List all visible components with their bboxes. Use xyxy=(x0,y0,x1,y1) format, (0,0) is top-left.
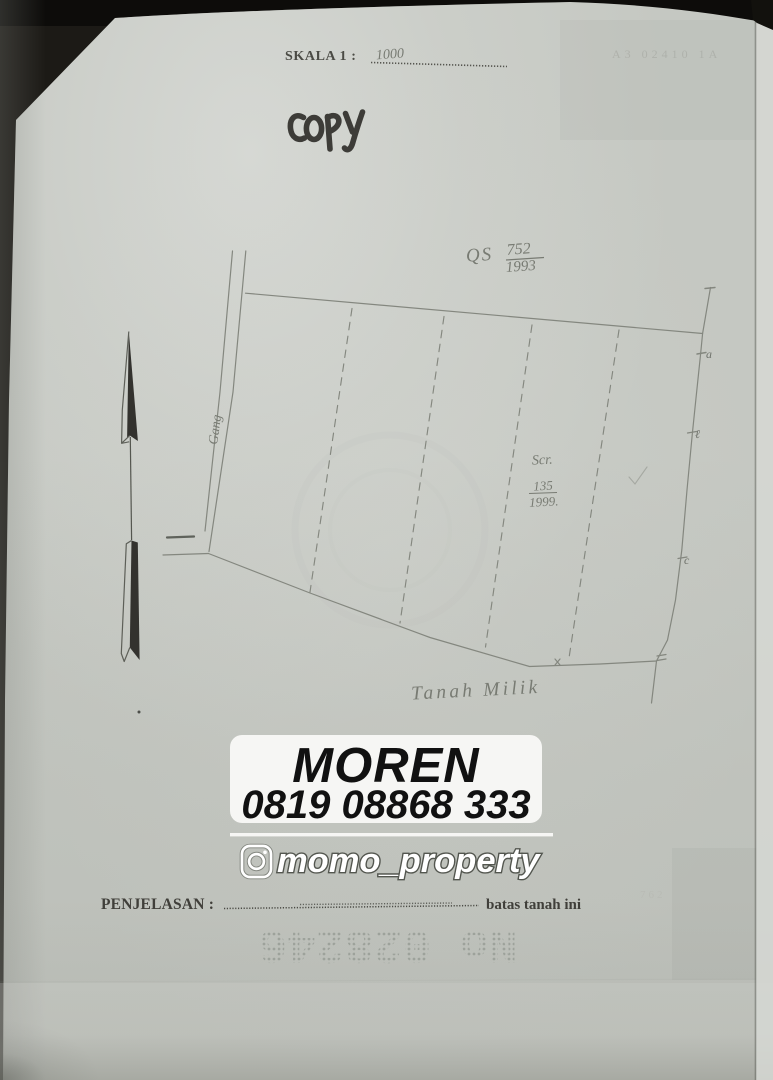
svg-text:No 028246: No 028246 xyxy=(258,916,517,970)
svg-text:momo_property: momo_property xyxy=(277,842,541,880)
svg-text:752: 752 xyxy=(506,240,531,259)
svg-text:A3 02410 1A: A3 02410 1A xyxy=(612,47,721,61)
svg-text:1999.: 1999. xyxy=(529,493,559,510)
svg-text:a: a xyxy=(706,347,712,361)
svg-text:1000: 1000 xyxy=(375,46,404,63)
svg-text:PENJELASAN :: PENJELASAN : xyxy=(101,896,214,913)
svg-text:1993: 1993 xyxy=(505,258,536,276)
svg-text:ℓ: ℓ xyxy=(695,427,700,441)
svg-text:Scr.: Scr. xyxy=(532,453,553,469)
svg-text:SKALA 1 :: SKALA 1 : xyxy=(285,49,357,64)
svg-text:762: 762 xyxy=(640,889,666,901)
svg-text:0819 08868 333: 0819 08868 333 xyxy=(241,783,530,827)
svg-text:batas tanah ini: batas tanah ini xyxy=(486,897,581,913)
svg-text:c: c xyxy=(684,553,690,567)
svg-text:QS: QS xyxy=(465,244,494,267)
svg-text:135: 135 xyxy=(533,478,554,494)
